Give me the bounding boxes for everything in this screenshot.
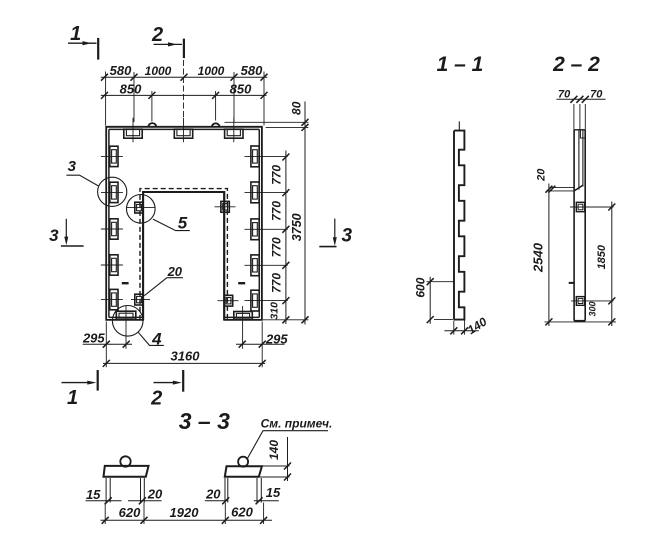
svg-text:3: 3 [342,226,353,247]
svg-text:70: 70 [590,89,603,101]
svg-text:300: 300 [588,301,598,316]
svg-text:3160: 3160 [171,348,201,363]
svg-text:2540: 2540 [530,242,545,273]
svg-text:1920: 1920 [170,505,200,520]
svg-text:1000: 1000 [145,64,172,78]
svg-text:20: 20 [205,486,221,501]
svg-text:1: 1 [67,387,78,409]
svg-text:1000: 1000 [198,64,225,78]
svg-text:620: 620 [119,505,141,520]
svg-text:310: 310 [268,302,280,320]
svg-text:1 – 1: 1 – 1 [437,53,484,76]
svg-text:5: 5 [178,214,188,233]
svg-text:140: 140 [267,440,281,460]
svg-text:580: 580 [241,63,263,78]
svg-text:295: 295 [265,332,288,347]
svg-text:1850: 1850 [596,244,608,269]
svg-text:3: 3 [49,226,59,245]
svg-text:70: 70 [558,89,571,101]
svg-text:3 – 3: 3 – 3 [179,408,230,434]
svg-text:15: 15 [86,487,101,502]
svg-text:80: 80 [290,101,304,115]
svg-text:580: 580 [110,63,132,78]
svg-text:2: 2 [151,24,163,46]
svg-text:140: 140 [465,314,490,337]
svg-text:20: 20 [147,487,163,502]
svg-text:2: 2 [150,388,162,410]
svg-text:20: 20 [536,168,548,182]
svg-text:15: 15 [266,485,281,500]
svg-text:1: 1 [70,23,81,45]
svg-text:770: 770 [270,201,284,221]
svg-text:4: 4 [151,329,162,348]
svg-text:3: 3 [68,158,77,175]
svg-text:20: 20 [167,264,183,279]
svg-text:См. примеч.: См. примеч. [261,417,333,431]
svg-text:2 – 2: 2 – 2 [552,53,600,76]
svg-text:850: 850 [230,82,252,97]
svg-text:850: 850 [120,82,142,97]
svg-text:620: 620 [231,505,253,520]
svg-text:770: 770 [270,165,284,185]
svg-text:600: 600 [414,277,428,297]
svg-text:770: 770 [270,273,284,293]
svg-text:3750: 3750 [290,213,304,241]
svg-text:770: 770 [270,237,284,257]
svg-text:295: 295 [82,331,105,346]
